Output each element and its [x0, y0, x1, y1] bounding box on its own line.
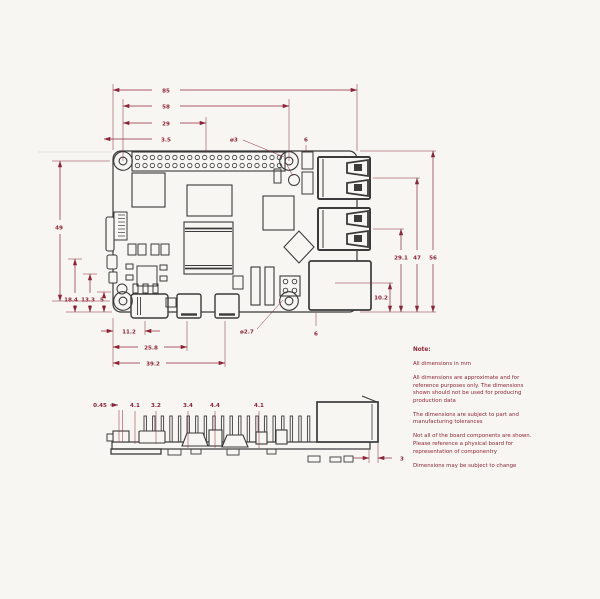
io-controller-chip — [263, 196, 294, 230]
dim-right-56: 56 — [429, 256, 437, 262]
dim-bottom-6: 6 — [314, 331, 318, 337]
dim-side-4-4: 4.4 — [210, 403, 220, 409]
gpio-header — [132, 152, 285, 171]
wireless-module — [132, 173, 165, 207]
dim-side-3-4: 3.4 — [183, 403, 193, 409]
dim-right-47: 47 — [413, 256, 421, 262]
dim-side-3-2: 3.2 — [151, 403, 161, 409]
notes: Note: All dimensions in mm All dimension… — [413, 347, 537, 477]
edge-connector — [106, 217, 114, 251]
dim-left-49: 49 — [55, 225, 63, 231]
dim-hole-dia-3: ø3 — [230, 137, 238, 143]
side-components — [139, 430, 287, 447]
edge-connector-small-2 — [109, 272, 117, 283]
schematic-page: { "colors": { "background": "#f7f6f3", "… — [0, 0, 600, 599]
dim-top-6: 6 — [304, 137, 308, 143]
usb-stack-2 — [318, 208, 370, 250]
dim-bottom-25-8: 25.8 — [144, 345, 158, 351]
micro-hdmi-1 — [177, 294, 201, 318]
dim-top-58: 58 — [162, 104, 170, 110]
dim-top-3-5: 3.5 — [161, 137, 171, 143]
ram-chip — [187, 185, 232, 216]
poe-header — [280, 276, 300, 296]
side-usb-box — [317, 396, 378, 442]
dim-side-4-1a: 4.1 — [130, 403, 140, 409]
fpc-strip-1 — [251, 267, 260, 305]
dim-hole-dia-2-7: ø2.7 — [240, 329, 254, 335]
dim-right-29-1: 29.1 — [394, 256, 408, 262]
dim-left-5: 5 — [100, 297, 104, 303]
mounting-holes — [114, 152, 299, 311]
ethernet-jack — [309, 261, 371, 310]
dim-right-10-2: 10.2 — [374, 295, 388, 301]
usb-stack-1 — [318, 157, 370, 199]
side-view-board — [107, 396, 378, 462]
diamond-component — [284, 231, 314, 263]
dim-side-3: 3 — [400, 456, 404, 462]
dim-top-29: 29 — [162, 121, 170, 127]
dim-side-0-45: 0.45 — [93, 403, 107, 409]
dim-left-18-4: 18.4 — [64, 297, 78, 303]
note-line: All dimensions in mm — [413, 361, 537, 369]
note-line: Dimensions may be subject to change — [413, 463, 537, 471]
fpc-connector — [114, 212, 127, 240]
notes-heading: Note: — [413, 347, 537, 355]
note-line: The dimensions are subject to part and m… — [413, 412, 537, 427]
top-view-board — [106, 151, 371, 318]
board-mechanical-drawing: 85 58 29 3.5 ø3 6 29.1 47 56 — [0, 0, 600, 599]
note-line: All dimensions are approximate and for r… — [413, 375, 537, 405]
side-underside-components — [168, 449, 353, 462]
dim-bottom-39-2: 39.2 — [146, 361, 160, 367]
note-line: Not all of the board components are show… — [413, 433, 537, 456]
edge-connector-small — [107, 255, 117, 269]
dim-bottom-11-2: 11.2 — [122, 329, 136, 335]
usb-c-power — [131, 294, 168, 318]
fpc-strip-2 — [265, 267, 274, 305]
dim-top-85: 85 — [162, 88, 170, 94]
dim-side-4-1b: 4.1 — [254, 403, 264, 409]
micro-hdmi-2 — [215, 294, 239, 318]
soc-chip — [184, 222, 233, 274]
dim-left-13-3: 13.3 — [81, 297, 95, 303]
